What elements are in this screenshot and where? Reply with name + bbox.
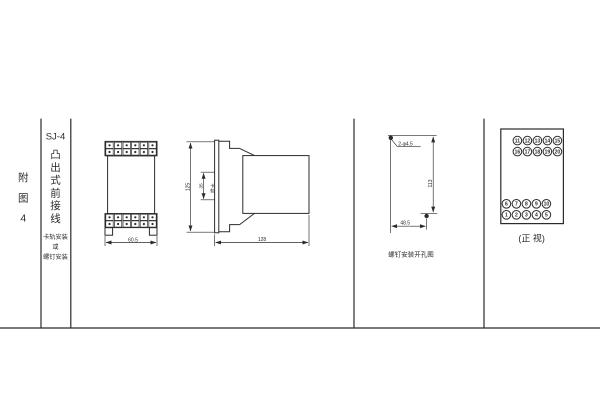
side-view-rail-dimension: 35 卡 轨	[199, 172, 215, 200]
screw-mounting-diagram: 2-φ4.5 113 48.5 螺钉安装开孔图	[388, 135, 437, 258]
side-view-top-step	[219, 141, 240, 148]
terminal-5: 5	[542, 211, 551, 220]
side-view-drawing: 125 35 卡 轨 128	[186, 140, 309, 246]
svg-text:2: 2	[515, 213, 518, 219]
drawing-page: 附 图 4 SJ-4 凸 出 式 前 接 线 卡轨安装 或 螺钉安装	[0, 0, 600, 400]
svg-text:14: 14	[545, 139, 551, 145]
side-view-front-plate	[215, 140, 219, 233]
front-view-top-terminals	[106, 142, 156, 155]
terminal-6: 6	[502, 200, 511, 209]
terminal-15: 15	[553, 136, 562, 145]
mounting-note-line-2: 或	[52, 243, 58, 251]
technical-drawing-canvas: 附 图 4 SJ-4 凸 出 式 前 接 线 卡轨安装 或 螺钉安装	[0, 0, 600, 400]
terminal-view-caption: (正 视)	[518, 233, 545, 244]
mounting-note-line-1: 卡轨安装	[43, 233, 68, 241]
terminal-group-top: 11 12 13 14 15 16 17 18 19 20	[513, 136, 562, 156]
title-column: SJ-4 凸 出 式 前 接 线 卡轨安装 或 螺钉安装	[43, 132, 68, 261]
bottom-mounting-hole	[424, 214, 428, 218]
title-char-5: 接	[50, 199, 61, 212]
svg-text:6: 6	[505, 202, 508, 208]
front-view-width-dimension: 60.5	[105, 236, 157, 246]
title-char-3: 式	[50, 174, 61, 187]
mounting-note-line-3: 螺钉安装	[43, 253, 68, 261]
rail-name-char-2: 轨	[210, 187, 215, 194]
figure-label-char-3: 4	[20, 213, 26, 225]
front-view-width-label: 60.5	[128, 237, 138, 243]
terminal-9: 9	[532, 200, 541, 209]
figure-label-column: 附 图 4	[18, 171, 29, 225]
terminal-14: 14	[543, 136, 552, 145]
figure-label-char-2: 图	[18, 193, 29, 205]
terminal-20: 20	[553, 147, 562, 156]
svg-text:12: 12	[525, 139, 531, 145]
svg-text:10: 10	[544, 202, 550, 208]
svg-text:17: 17	[525, 150, 531, 156]
svg-text:19: 19	[545, 150, 551, 156]
svg-text:5: 5	[545, 213, 548, 219]
terminal-2: 2	[512, 211, 521, 220]
terminal-10: 10	[542, 200, 551, 209]
svg-text:11: 11	[515, 139, 521, 145]
terminal-group-bottom: 6 7 8 9 10 1 2 3 4 5	[502, 200, 551, 220]
svg-text:20: 20	[555, 150, 561, 156]
terminal-4: 4	[532, 211, 541, 220]
svg-text:13: 13	[535, 139, 541, 145]
svg-text:18: 18	[535, 150, 541, 156]
side-view-case-body	[243, 156, 309, 214]
terminal-16: 16	[513, 147, 522, 156]
front-view-drawing: 60.5	[105, 141, 157, 246]
terminal-11: 11	[513, 136, 522, 145]
terminal-12: 12	[523, 136, 532, 145]
svg-text:16: 16	[515, 150, 521, 156]
svg-text:4: 4	[535, 213, 538, 219]
screw-diagram-caption: 螺钉安装开孔图	[388, 250, 434, 259]
terminal-1: 1	[502, 211, 511, 220]
terminal-layout-diagram: 11 12 13 14 15 16 17 18 19 20 6 7 8 9 10…	[501, 129, 564, 244]
front-view-bottom-terminals	[106, 214, 156, 227]
title-char-2: 出	[50, 161, 61, 174]
svg-text:7: 7	[515, 202, 518, 208]
svg-text:9: 9	[535, 202, 538, 208]
terminal-18: 18	[533, 147, 542, 156]
side-view-height-label: 125	[186, 183, 192, 192]
vertical-dim-label: 113	[428, 179, 434, 187]
front-view-left-foot	[105, 228, 113, 236]
svg-text:8: 8	[525, 202, 528, 208]
model-label: SJ-4	[46, 132, 66, 143]
title-char-6: 线	[50, 212, 61, 225]
front-view-right-foot	[149, 228, 157, 236]
figure-label-char-1: 附	[18, 171, 29, 184]
side-view-bottom-step	[219, 225, 240, 232]
side-view-depth-dimension: 128	[215, 215, 309, 246]
front-view-body	[108, 156, 155, 214]
title-char-4: 前	[50, 187, 61, 200]
side-view-bottom-chamfer	[240, 213, 255, 224]
terminal-7: 7	[512, 200, 521, 209]
top-mounting-hole	[389, 136, 393, 140]
terminal-13: 13	[533, 136, 542, 145]
title-char-1: 凸	[50, 149, 61, 161]
side-view-top-chamfer	[240, 148, 255, 155]
rail-width-label: 35	[199, 183, 205, 189]
horizontal-dim-label: 48.5	[400, 220, 410, 226]
terminal-17: 17	[523, 147, 532, 156]
side-view-depth-label: 128	[258, 237, 267, 243]
hole-size-label: 2-φ4.5	[398, 141, 413, 147]
svg-text:1: 1	[505, 213, 508, 219]
terminal-8: 8	[522, 200, 531, 209]
svg-text:15: 15	[555, 139, 561, 145]
terminal-3: 3	[522, 211, 531, 220]
svg-text:3: 3	[525, 213, 528, 219]
terminal-19: 19	[543, 147, 552, 156]
